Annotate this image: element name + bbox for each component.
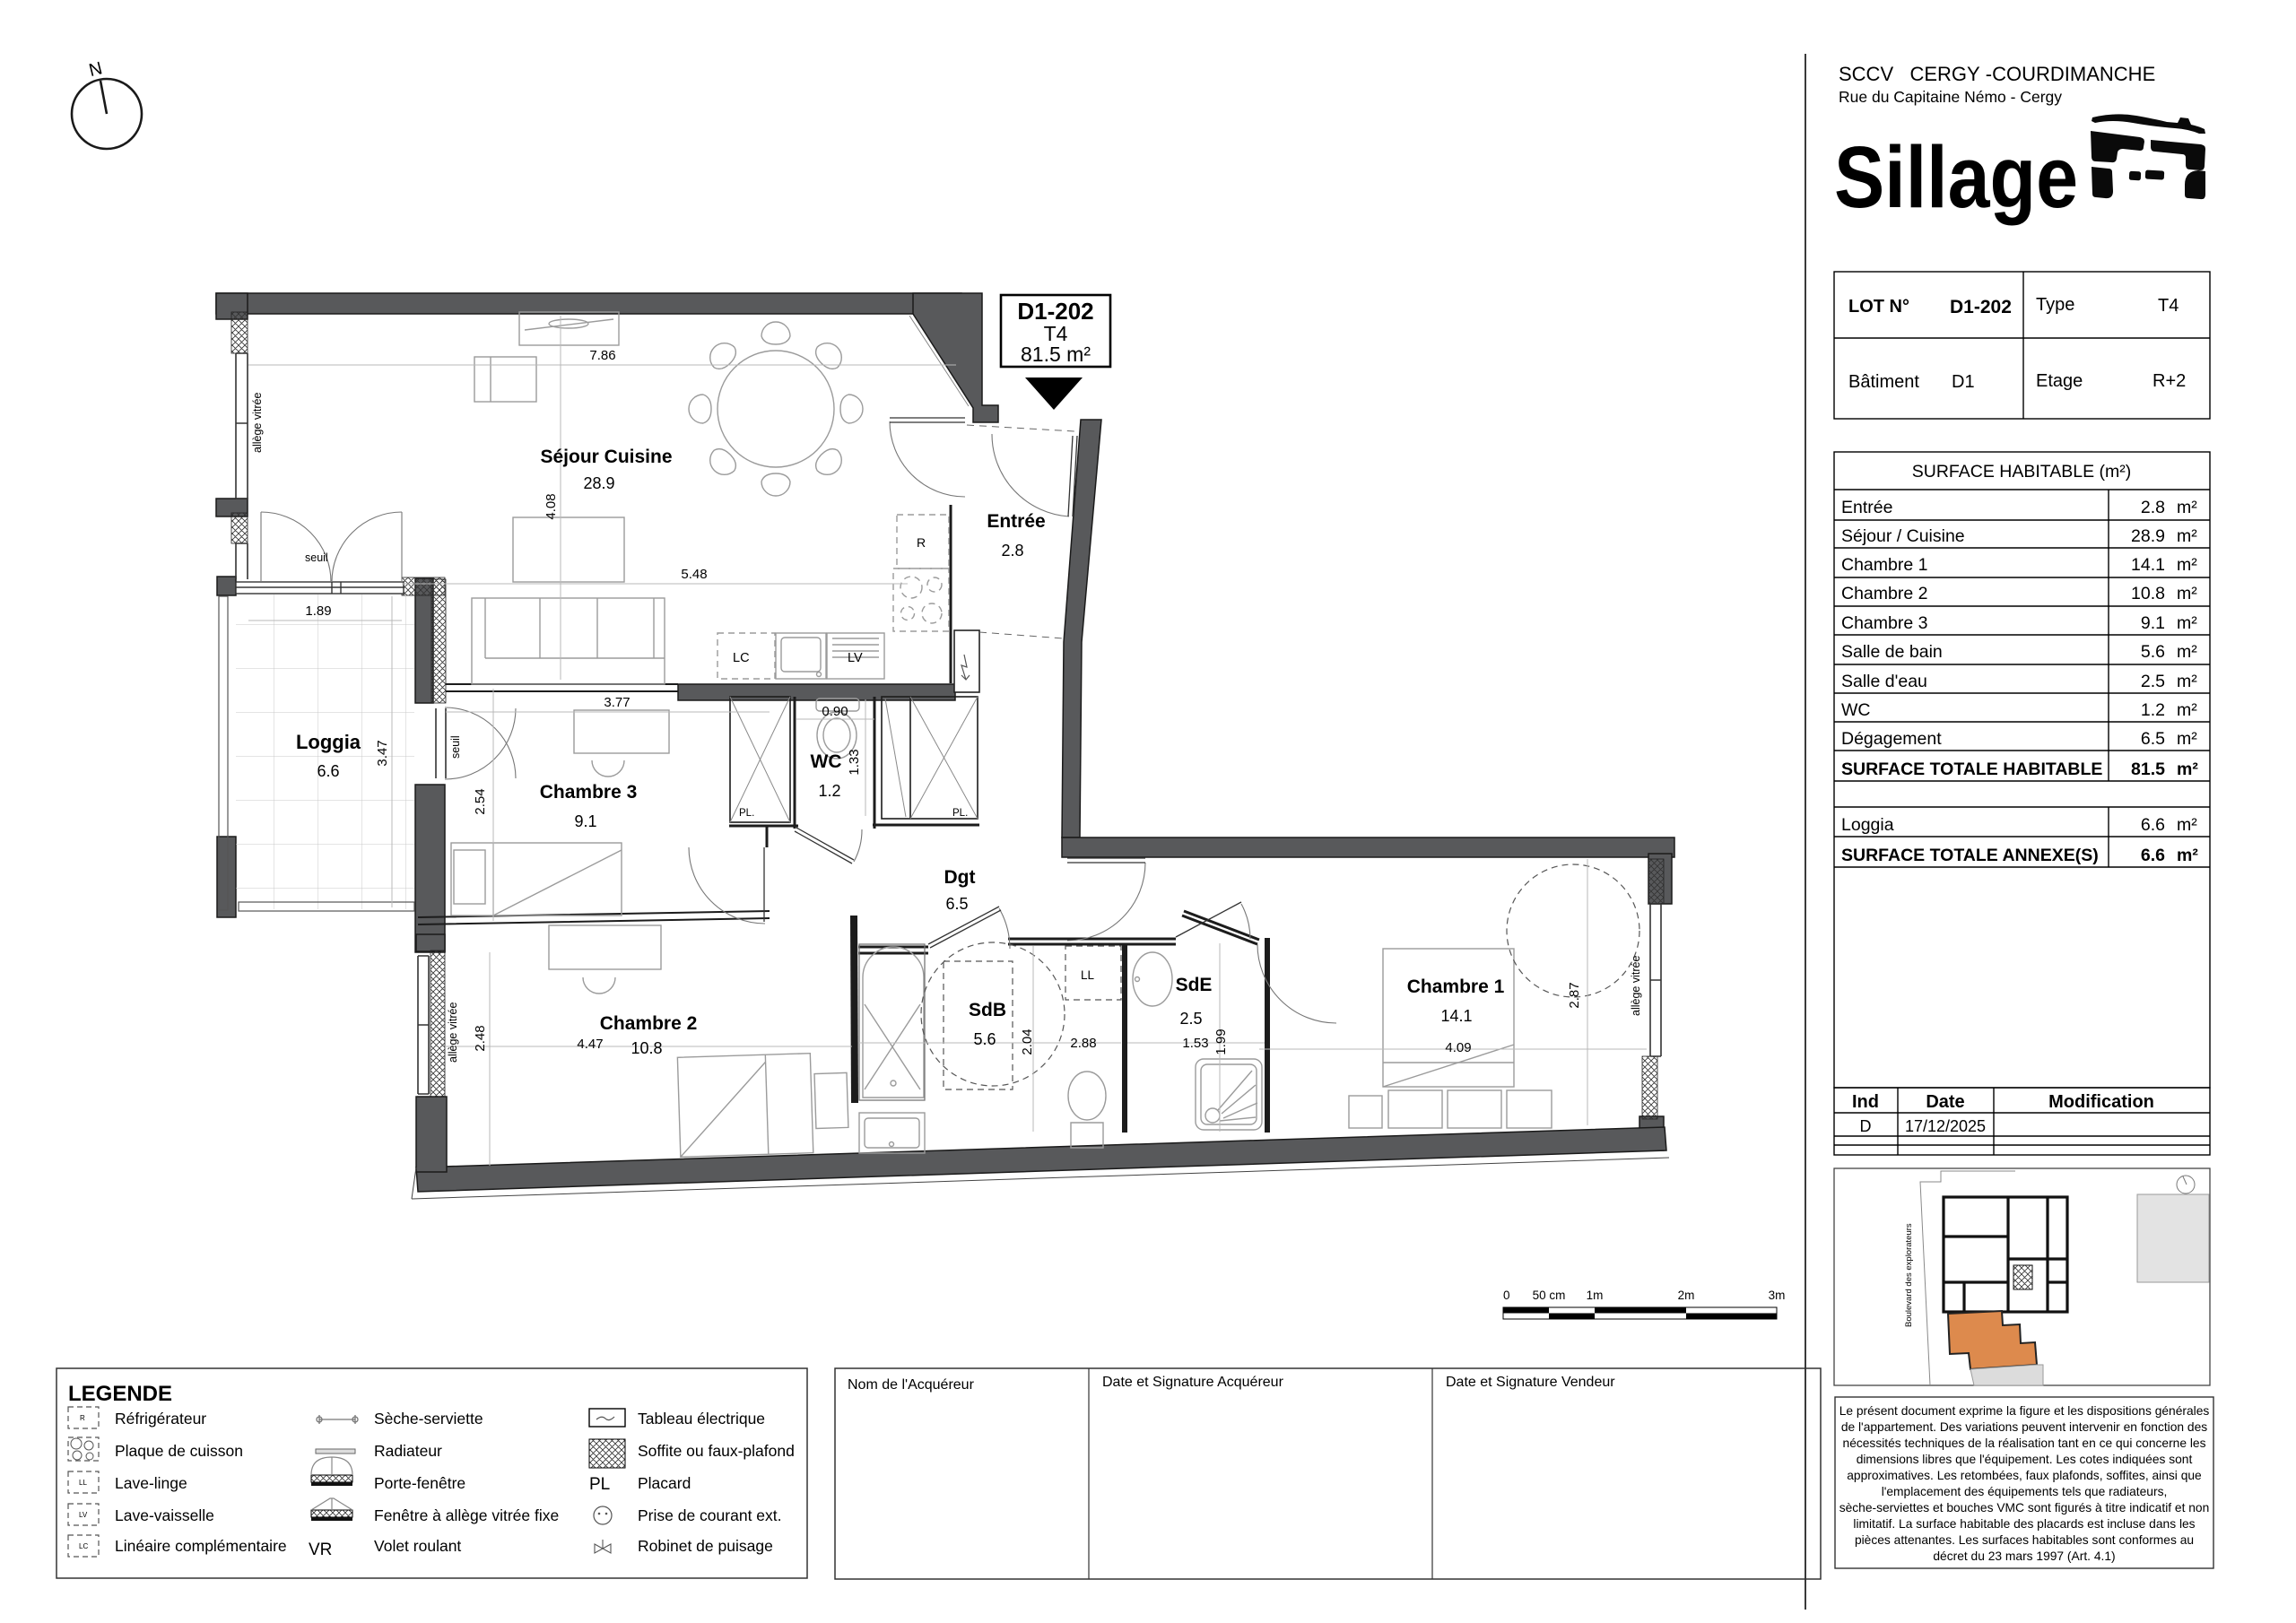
svg-text:14.1: 14.1	[2131, 555, 2165, 575]
svg-text:9.1: 9.1	[2141, 613, 2165, 633]
svg-text:Chambre 2: Chambre 2	[1841, 584, 1927, 603]
svg-text:Dgt: Dgt	[944, 867, 976, 888]
svg-text:Linéaire complémentaire: Linéaire complémentaire	[115, 1537, 287, 1555]
svg-text:LC: LC	[733, 651, 750, 665]
svg-text:WC: WC	[1841, 700, 1871, 720]
svg-text:1.99: 1.99	[1213, 1028, 1229, 1055]
svg-text:Le présent document exprime la: Le présent document exprime la figure et…	[1839, 1404, 2210, 1418]
svg-text:10.8: 10.8	[2131, 584, 2165, 603]
svg-text:Placard: Placard	[638, 1474, 691, 1492]
svg-text:1.53: 1.53	[1182, 1036, 1208, 1051]
svg-text:T4: T4	[2158, 296, 2179, 316]
svg-text:2.5: 2.5	[2141, 672, 2165, 691]
svg-text:50 cm: 50 cm	[1533, 1289, 1566, 1302]
svg-text:2.8: 2.8	[2141, 498, 2165, 517]
svg-text:2.04: 2.04	[1020, 1028, 1035, 1055]
svg-text:m²: m²	[2177, 584, 2197, 603]
svg-text:SdE: SdE	[1176, 975, 1213, 995]
svg-text:6.5: 6.5	[945, 895, 968, 913]
svg-text:14.1: 14.1	[1440, 1007, 1472, 1025]
svg-text:limitatif. La surface habitabl: limitatif. La surface habitable des plac…	[1853, 1517, 2195, 1531]
svg-text:Prise de courant ext.: Prise de courant ext.	[638, 1506, 782, 1524]
svg-text:Fenêtre à allège vitrée fixe: Fenêtre à allège vitrée fixe	[374, 1506, 559, 1524]
svg-text:allège vitrée: allège vitrée	[447, 1002, 459, 1063]
svg-text:m²: m²	[2177, 846, 2198, 865]
svg-text:Réfrigérateur: Réfrigérateur	[115, 1410, 206, 1428]
svg-text:Nom de l'Acquéreur: Nom de l'Acquéreur	[848, 1377, 975, 1393]
svg-text:m²: m²	[2177, 815, 2197, 835]
svg-text:seuil: seuil	[449, 735, 462, 759]
svg-text:2.5: 2.5	[1179, 1010, 1202, 1028]
svg-text:6.6: 6.6	[2141, 815, 2165, 835]
svg-text:10.8: 10.8	[631, 1039, 662, 1057]
svg-text:2.88: 2.88	[1070, 1036, 1096, 1051]
svg-text:3.47: 3.47	[375, 740, 390, 766]
svg-text:Séjour / Cuisine: Séjour / Cuisine	[1841, 526, 1965, 546]
svg-text:5.48: 5.48	[681, 567, 707, 582]
svg-text:sèche-serviettes et bouches VM: sèche-serviettes et bouches VMC sont fig…	[1839, 1501, 2210, 1515]
svg-text:17/12/2025: 17/12/2025	[1905, 1117, 1986, 1135]
svg-text:Sillage: Sillage	[1834, 128, 2078, 226]
svg-text:m²: m²	[2177, 498, 2197, 517]
svg-text:Séjour Cuisine: Séjour Cuisine	[540, 447, 672, 467]
svg-text:m²: m²	[2177, 672, 2197, 691]
svg-text:SURFACE HABITABLE (m²): SURFACE HABITABLE (m²)	[1912, 462, 2132, 482]
svg-text:5.6: 5.6	[973, 1030, 996, 1048]
svg-text:Ind: Ind	[1852, 1092, 1879, 1112]
svg-text:Loggia: Loggia	[1841, 815, 1894, 835]
svg-text:1.89: 1.89	[305, 603, 331, 619]
svg-text:Chambre 3: Chambre 3	[540, 782, 638, 803]
svg-text:pièces attenantes. Les surface: pièces attenantes. Les surfaces habitabl…	[1855, 1533, 2194, 1547]
svg-text:3.77: 3.77	[604, 695, 630, 710]
svg-text:SURFACE TOTALE HABITABLE: SURFACE TOTALE HABITABLE	[1841, 759, 2102, 779]
svg-text:m²: m²	[2177, 759, 2198, 779]
svg-text:Chambre 1: Chambre 1	[1841, 555, 1927, 575]
svg-text:Chambre 1: Chambre 1	[1407, 976, 1505, 997]
svg-text:Lave-vaisselle: Lave-vaisselle	[115, 1506, 214, 1524]
svg-text:seuil: seuil	[305, 551, 328, 564]
svg-text:Etage: Etage	[2036, 371, 2083, 391]
svg-text:Bâtiment: Bâtiment	[1848, 372, 1919, 392]
svg-text:Dégagement: Dégagement	[1841, 729, 1942, 749]
svg-text:0.90: 0.90	[822, 704, 848, 719]
svg-text:Loggia: Loggia	[296, 731, 361, 753]
svg-text:SdB: SdB	[969, 1000, 1006, 1020]
svg-text:Radiateur: Radiateur	[374, 1442, 442, 1460]
svg-text:Type: Type	[2036, 295, 2074, 315]
svg-text:LOT N°: LOT N°	[1848, 297, 1909, 317]
svg-text:LL: LL	[79, 1479, 87, 1487]
svg-text:2.8: 2.8	[1001, 542, 1023, 560]
svg-text:LC: LC	[79, 1542, 88, 1550]
svg-text:m²: m²	[2177, 613, 2197, 633]
svg-text:m²: m²	[2177, 526, 2197, 546]
svg-text:LEGENDE: LEGENDE	[68, 1382, 172, 1406]
svg-text:2.54: 2.54	[473, 788, 488, 814]
svg-text:Entrée: Entrée	[1841, 498, 1892, 517]
svg-text:approximatives. Les retombées,: approximatives. Les retombées, faux plaf…	[1847, 1469, 2202, 1482]
svg-text:Boulevard des explorateurs: Boulevard des explorateurs	[1904, 1223, 1914, 1327]
svg-text:de l'appartement. Des variatio: de l'appartement. Des variations peuvent…	[1841, 1420, 2207, 1434]
svg-text:2m: 2m	[1678, 1289, 1695, 1302]
svg-text:Date: Date	[1926, 1092, 1964, 1112]
svg-text:D1-202: D1-202	[1017, 298, 1093, 325]
svg-text:LV: LV	[848, 651, 863, 665]
svg-text:3m: 3m	[1769, 1289, 1786, 1302]
svg-text:7.86: 7.86	[589, 348, 615, 363]
svg-text:D1-202: D1-202	[1950, 297, 2012, 317]
svg-text:Modification: Modification	[2048, 1092, 2154, 1112]
svg-text:Salle de bain: Salle de bain	[1841, 642, 1943, 662]
svg-text:D: D	[1860, 1117, 1872, 1135]
svg-text:PL: PL	[589, 1475, 610, 1494]
svg-text:nécessités techniques de la ré: nécessités techniques de la réalisation …	[1843, 1436, 2206, 1450]
svg-text:VR: VR	[309, 1541, 332, 1559]
svg-text:SCCV CERGY -COURDIMANCHE: SCCV CERGY -COURDIMANCHE	[1839, 63, 2155, 85]
svg-text:81.5 m²: 81.5 m²	[1021, 343, 1091, 366]
svg-text:m²: m²	[2177, 642, 2197, 662]
svg-text:6.5: 6.5	[2141, 729, 2165, 749]
svg-text:4.47: 4.47	[577, 1037, 603, 1052]
svg-text:4.09: 4.09	[1445, 1040, 1471, 1055]
svg-text:dimensions libres que l'équipe: dimensions libres que l'équipement. Les …	[1857, 1453, 2193, 1466]
svg-text:1.2: 1.2	[2141, 700, 2165, 720]
svg-text:D1: D1	[1952, 372, 1975, 392]
svg-text:R: R	[80, 1414, 85, 1422]
svg-text:1m: 1m	[1587, 1289, 1604, 1302]
svg-text:6.6: 6.6	[2141, 846, 2165, 865]
svg-text:81.5: 81.5	[2131, 759, 2165, 779]
svg-text:Soffite ou faux-plafond: Soffite ou faux-plafond	[638, 1442, 795, 1460]
svg-text:Chambre 2: Chambre 2	[600, 1013, 698, 1034]
svg-text:28.9: 28.9	[2131, 526, 2165, 546]
svg-text:28.9: 28.9	[583, 474, 614, 492]
svg-text:R+2: R+2	[2152, 371, 2186, 391]
svg-text:WC: WC	[811, 751, 842, 772]
svg-text:m²: m²	[2177, 555, 2197, 575]
svg-text:Rue du Capitaine Némo - Cergy: Rue du Capitaine Némo - Cergy	[1839, 88, 2062, 106]
svg-text:SURFACE TOTALE ANNEXE(S): SURFACE TOTALE ANNEXE(S)	[1841, 846, 2099, 865]
svg-text:R: R	[917, 535, 926, 550]
svg-text:5.6: 5.6	[2141, 642, 2165, 662]
svg-text:Lave-linge: Lave-linge	[115, 1474, 187, 1492]
svg-text:m²: m²	[2177, 729, 2197, 749]
svg-text:Entrée: Entrée	[987, 511, 1045, 532]
svg-text:0: 0	[1503, 1289, 1510, 1302]
svg-text:Salle d'eau: Salle d'eau	[1841, 672, 1927, 691]
svg-text:Chambre 3: Chambre 3	[1841, 613, 1927, 633]
svg-text:l'emplacement des équipements: l'emplacement des équipements tels que r…	[1882, 1485, 2168, 1498]
svg-text:2.87: 2.87	[1567, 982, 1582, 1008]
svg-text:9.1: 9.1	[574, 812, 596, 830]
svg-text:Date et Signature Vendeur: Date et Signature Vendeur	[1446, 1375, 1615, 1390]
svg-text:Date et Signature Acquéreur: Date et Signature Acquéreur	[1102, 1375, 1284, 1390]
svg-text:Sèche-serviette: Sèche-serviette	[374, 1410, 483, 1428]
svg-text:Volet roulant: Volet roulant	[374, 1537, 461, 1555]
svg-text:2.48: 2.48	[473, 1025, 488, 1051]
svg-text:m²: m²	[2177, 700, 2197, 720]
svg-text:1.2: 1.2	[818, 782, 840, 800]
svg-text:décret du 23 mars 1997 (Art. 4: décret du 23 mars 1997 (Art. 4.1)	[1933, 1549, 2115, 1563]
svg-text:Porte-fenêtre: Porte-fenêtre	[374, 1474, 465, 1492]
svg-text:PL.: PL.	[952, 808, 968, 819]
svg-text:allège vitrée: allège vitrée	[251, 393, 264, 453]
svg-text:6.6: 6.6	[317, 762, 339, 780]
svg-text:LV: LV	[79, 1511, 88, 1519]
svg-text:4.08: 4.08	[544, 493, 559, 519]
svg-text:Tableau électrique: Tableau électrique	[638, 1410, 765, 1428]
svg-text:1.33: 1.33	[847, 749, 862, 775]
svg-text:allège vitrée: allège vitrée	[1630, 956, 1642, 1016]
svg-text:LL: LL	[1081, 968, 1095, 982]
svg-text:Robinet de puisage: Robinet de puisage	[638, 1537, 773, 1555]
svg-text:Plaque de cuisson: Plaque de cuisson	[115, 1442, 243, 1460]
svg-text:PL.: PL.	[739, 808, 754, 819]
